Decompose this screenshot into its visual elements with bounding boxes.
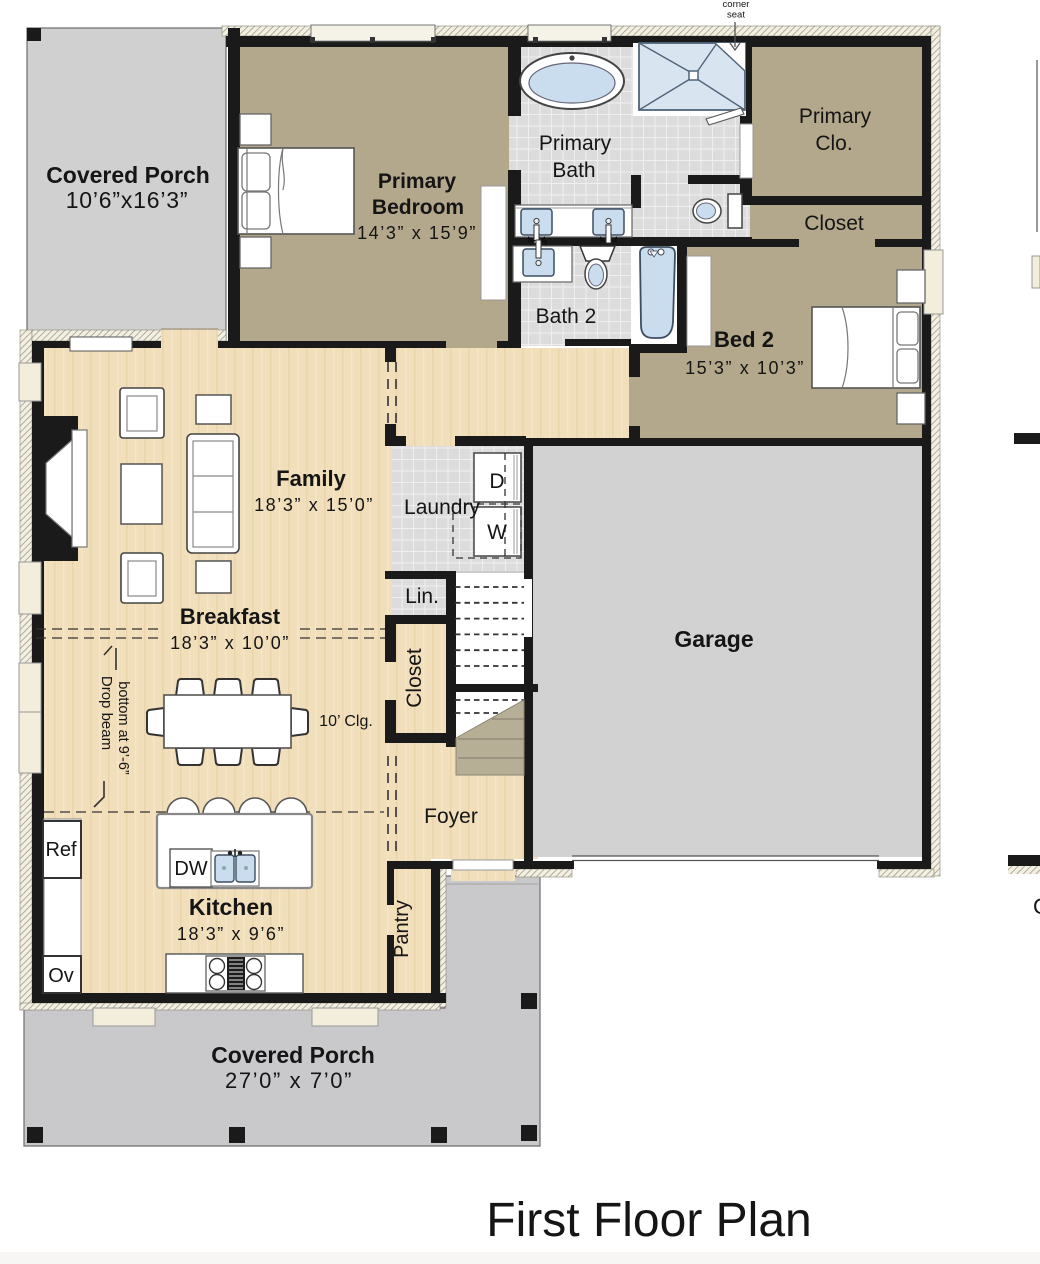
svg-text:15’3” x 10’3”: 15’3” x 10’3” [685, 358, 805, 378]
svg-text:Bed 2: Bed 2 [714, 327, 774, 352]
svg-text:10’ Clg.: 10’ Clg. [319, 713, 373, 730]
svg-text:Kitchen: Kitchen [189, 894, 273, 920]
svg-text:Bedroom: Bedroom [372, 196, 464, 219]
svg-text:Covered Porch: Covered Porch [46, 162, 210, 188]
svg-text:27’0” x 7’0”: 27’0” x 7’0” [225, 1068, 353, 1093]
svg-text:First Floor Plan: First Floor Plan [486, 1194, 811, 1247]
svg-text:Lin.: Lin. [405, 585, 439, 608]
svg-text:Closet: Closet [804, 212, 864, 235]
svg-text:10’6”x16’3”: 10’6”x16’3” [66, 187, 189, 213]
svg-text:18’3” x 15’0”: 18’3” x 15’0” [254, 495, 374, 515]
svg-text:Bath: Bath [552, 159, 595, 182]
svg-text:Primary: Primary [539, 132, 612, 155]
svg-text:D: D [489, 470, 504, 493]
svg-text:Primary: Primary [378, 170, 457, 193]
svg-text:18’3” x 10’0”: 18’3” x 10’0” [170, 633, 290, 653]
svg-text:bottom at 9’-6”: bottom at 9’-6” [115, 681, 131, 775]
svg-text:W: W [487, 521, 507, 544]
svg-text:Primary: Primary [799, 105, 872, 128]
svg-text:DW: DW [174, 858, 207, 880]
svg-text:Family: Family [276, 466, 346, 491]
svg-text:Covered Porch: Covered Porch [211, 1042, 375, 1068]
svg-text:Ref: Ref [45, 839, 77, 861]
svg-text:C: C [1033, 894, 1040, 919]
svg-text:Pantry: Pantry [391, 900, 413, 958]
svg-text:Breakfast: Breakfast [180, 604, 281, 629]
svg-text:Laundry: Laundry [404, 496, 480, 519]
svg-text:Foyer: Foyer [424, 805, 478, 828]
svg-text:corner: corner [723, 0, 750, 10]
svg-text:Ov: Ov [48, 965, 74, 987]
svg-text:Clo.: Clo. [815, 132, 852, 155]
svg-text:Drop beam: Drop beam [98, 676, 115, 750]
svg-text:18’3” x 9’6”: 18’3” x 9’6” [177, 924, 285, 944]
svg-text:Closet: Closet [403, 648, 426, 708]
svg-text:seat: seat [727, 10, 745, 21]
svg-text:Garage: Garage [674, 626, 753, 652]
svg-text:14’3” x 15’9”: 14’3” x 15’9” [357, 223, 477, 243]
svg-text:Bath 2: Bath 2 [536, 305, 597, 328]
